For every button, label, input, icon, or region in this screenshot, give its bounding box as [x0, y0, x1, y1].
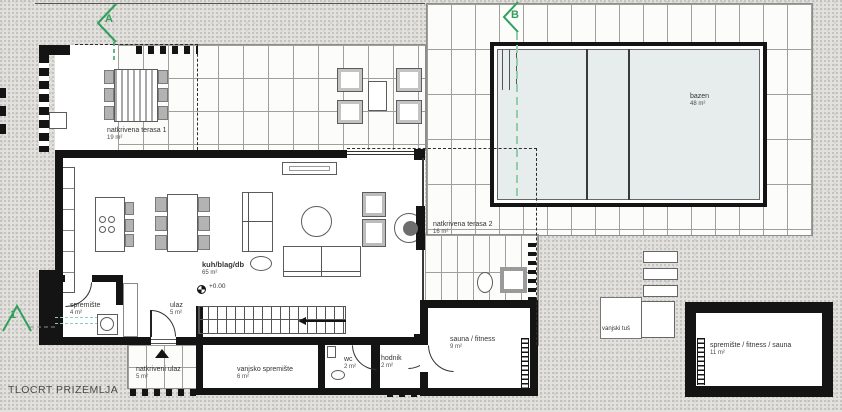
room-label-bazen: bazen48 m²	[690, 92, 709, 109]
section-label-a: A	[105, 14, 113, 25]
room-label-hodnik: hodnik2 m²	[381, 354, 402, 371]
room-label-vanjski-tus: vanjski tuš	[602, 326, 630, 334]
section-arrow-1	[3, 306, 31, 331]
section-label-b: B	[511, 10, 519, 21]
room-label-ulaz: ulaz5 m²	[170, 301, 183, 318]
room-label-terasa1: natkrivena terasa 119 m²	[107, 126, 167, 143]
room-label-wc: wc2 m²	[344, 355, 356, 372]
room-label-terasa2: natkrivena terasa 216 m²	[433, 220, 493, 237]
room-label-living: kuh/blag/db65 m²	[202, 260, 244, 278]
room-label-vanjsko-spremiste: vanjsko spremište6 m²	[237, 365, 293, 382]
room-label-spremiste-fitness-sauna: spremište / fitness / sauna11 m²	[710, 341, 791, 358]
section-label-1: 1	[10, 310, 16, 321]
room-label-natkriveni-ulaz: natkriveni ulaz5 m²	[136, 365, 181, 382]
room-label-sauna-fitness: sauna / fitness9 m²	[450, 335, 495, 352]
floor-plan-canvas: +0.00 A B 1 natkrivena terasa 119 m² baz…	[0, 0, 842, 412]
drawing-title: TLOCRT PRIZEMLJA	[8, 384, 118, 396]
room-label-spremiste: spremište4 m²	[70, 301, 100, 318]
